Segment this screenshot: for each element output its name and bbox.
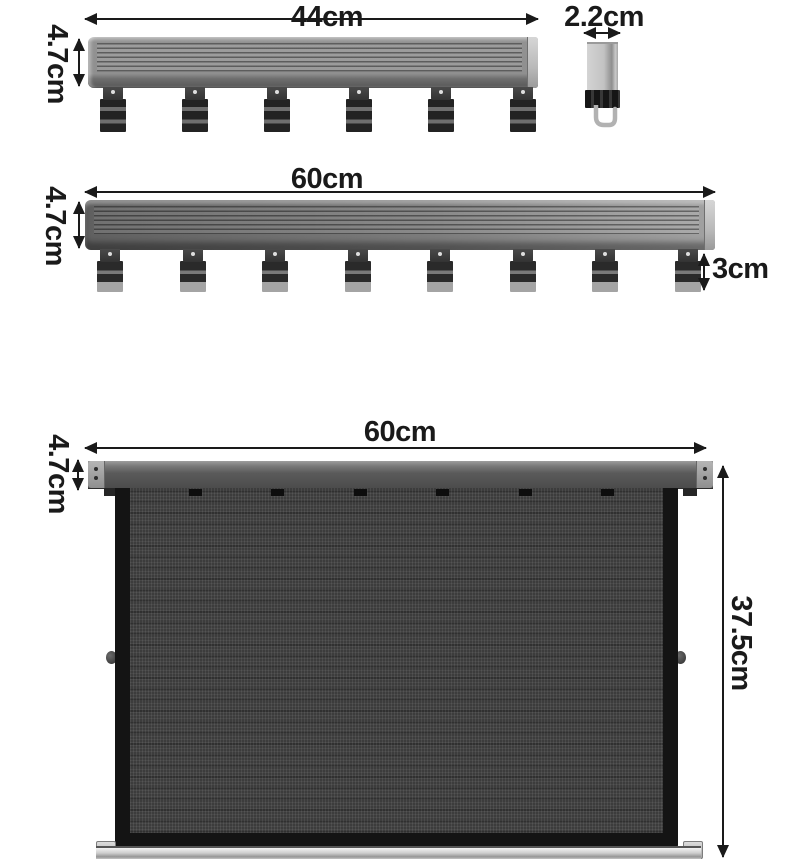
rail-hook [182, 87, 208, 132]
rail-hook [510, 87, 536, 132]
screen-right-bracket [683, 488, 697, 496]
hook-bracket [185, 87, 205, 100]
rail44-width-arrow [85, 18, 538, 20]
sideview-hook-icon [592, 105, 619, 130]
screw-hole [521, 252, 525, 256]
hook-clip [264, 99, 290, 132]
rail-hook [510, 249, 536, 292]
screw-hole [521, 90, 525, 94]
rail-hook [97, 249, 123, 292]
screen-tab [271, 489, 284, 496]
screen-header-bar [88, 461, 713, 489]
hook-bracket [267, 87, 287, 100]
rail-hook [264, 87, 290, 132]
hook-clip [345, 261, 371, 292]
screen-total-height-label: 37.5cm [726, 591, 756, 695]
hook-bracket [348, 249, 368, 262]
rail-hook [427, 249, 453, 292]
screen-header-height-label: 4.7cm [43, 432, 73, 516]
screw-hole [111, 90, 115, 94]
hook-bracket [595, 249, 615, 262]
hook-bracket [183, 249, 203, 262]
screw-hole [439, 90, 443, 94]
screen-tab [354, 489, 367, 496]
rail-hook [428, 87, 454, 132]
screen-header-height-arrow [77, 460, 79, 490]
screen-fabric-frame [115, 488, 678, 847]
hook-bracket [678, 249, 698, 262]
screen-mesh-fabric [130, 488, 663, 833]
hook-clip [180, 261, 206, 292]
screw-hole [356, 252, 360, 256]
rail44-height-arrow [78, 39, 80, 86]
hook-clip [510, 99, 536, 132]
rail60-height-arrow [78, 202, 80, 248]
rail60-width-arrow [85, 191, 715, 193]
screw-hole [94, 476, 98, 480]
screw-hole [357, 90, 361, 94]
screw-hole [94, 467, 98, 471]
sideview-depth-label: 2.2cm [562, 2, 646, 32]
screen-header-right-cap [696, 461, 713, 488]
hook-bracket [513, 249, 533, 262]
product-dimension-diagram: 44cm 4.7cm 2.2cm 60cm 4.7cm 3cm 60cm 4.7… [0, 0, 790, 862]
rail60-width-label: 60cm [245, 164, 409, 194]
rail-hook [345, 249, 371, 292]
hook-bracket [349, 87, 369, 100]
screen-base-bar [96, 846, 701, 859]
rail60-height-label: 4.7cm [40, 184, 70, 268]
hook-bracket [430, 249, 450, 262]
screw-hole [703, 476, 707, 480]
rail-hook [262, 249, 288, 292]
screen-total-height-arrow [722, 466, 724, 857]
hook-clip [510, 261, 536, 292]
rail60-ribbed-face [94, 206, 699, 234]
screw-hole [438, 252, 442, 256]
rail-hook [100, 87, 126, 132]
rail-hook [180, 249, 206, 292]
hook-clip [428, 99, 454, 132]
hook-height-arrow [703, 254, 705, 290]
hook-clip [97, 261, 123, 292]
rail44-end-cap [527, 37, 538, 88]
rail44-ribbed-face [97, 43, 522, 72]
screw-hole [703, 467, 707, 471]
hook-clip [427, 261, 453, 292]
hook-bracket [431, 87, 451, 100]
rail60-body [85, 200, 715, 250]
hook-bracket [513, 87, 533, 100]
rail44-body [88, 37, 538, 88]
hook-height-label: 3cm [712, 254, 772, 284]
hook-bracket [100, 249, 120, 262]
hook-clip [182, 99, 208, 132]
screen-tab [436, 489, 449, 496]
hook-bracket [103, 87, 123, 100]
screen-width-arrow [85, 447, 706, 449]
screw-hole [603, 252, 607, 256]
screen-tab [601, 489, 614, 496]
screen-tab [519, 489, 532, 496]
screen-width-label: 60cm [318, 417, 482, 447]
screen-tab [189, 489, 202, 496]
screw-hole [686, 252, 690, 256]
screw-hole [108, 252, 112, 256]
sideview-rail-profile [587, 42, 618, 94]
rail44-height-label: 4.7cm [42, 22, 72, 106]
screw-hole [191, 252, 195, 256]
rail60-end-cap [704, 200, 715, 250]
rail-hook [592, 249, 618, 292]
screw-hole [273, 252, 277, 256]
hook-bracket [265, 249, 285, 262]
hook-clip [346, 99, 372, 132]
rail-hook [346, 87, 372, 132]
hook-clip [262, 261, 288, 292]
hook-clip [100, 99, 126, 132]
screw-hole [275, 90, 279, 94]
hook-clip [592, 261, 618, 292]
screen-header-left-cap [88, 461, 105, 488]
sideview-depth-arrow [584, 32, 620, 34]
rail44-width-label: 44cm [245, 2, 409, 32]
screw-hole [193, 90, 197, 94]
